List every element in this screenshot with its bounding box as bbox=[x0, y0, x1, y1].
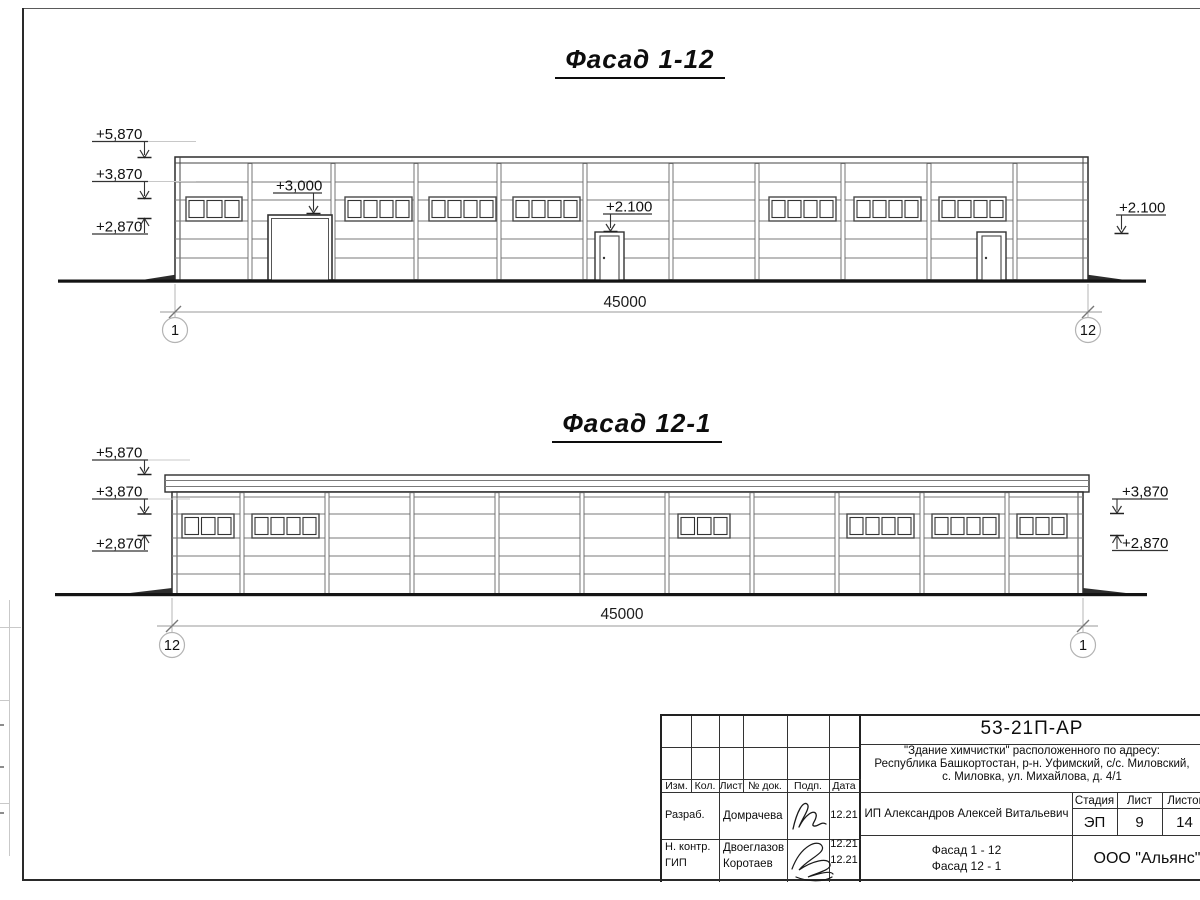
sheets-total: 14 bbox=[1162, 810, 1200, 835]
strip-window-4pane bbox=[513, 197, 580, 221]
svg-text:+3,870: +3,870 bbox=[1122, 484, 1168, 501]
elevation-mark: +5,870 bbox=[92, 445, 190, 475]
signature bbox=[786, 837, 838, 882]
facade2-wall bbox=[172, 492, 1083, 595]
svg-text:+2,870: +2,870 bbox=[96, 219, 142, 236]
axis-marker: 1 bbox=[163, 318, 188, 343]
svg-text:+2.100: +2.100 bbox=[606, 199, 652, 216]
col-header-ndok: № док. bbox=[743, 780, 787, 792]
document-code: 53-21П-АР bbox=[861, 718, 1200, 743]
svg-text:12: 12 bbox=[164, 638, 180, 654]
strip-window-4pane bbox=[854, 197, 921, 221]
axis-marker: 1 bbox=[1071, 633, 1096, 658]
role-label: Разраб. bbox=[665, 809, 705, 821]
signature bbox=[789, 797, 831, 839]
role-label: ГИП bbox=[665, 857, 687, 869]
facade2-parapet bbox=[165, 475, 1089, 492]
margin-strip-mark bbox=[0, 724, 4, 726]
company-name: ООО "Альянс" bbox=[1072, 835, 1200, 882]
gate bbox=[268, 215, 332, 280]
stage-value: ЭП bbox=[1072, 810, 1117, 835]
strip-window-4pane bbox=[847, 514, 914, 538]
col-header-kol: Кол. bbox=[691, 780, 719, 792]
elevation-mark: +2,870 bbox=[92, 536, 152, 553]
title-block: Изм. Кол. Лист № док. Подп. Дата Разраб.… bbox=[660, 714, 1200, 882]
sheets-header: Листов bbox=[1162, 795, 1200, 807]
strip-window-3pane bbox=[1017, 514, 1067, 538]
role-date: 12.21 bbox=[829, 809, 859, 821]
svg-text:+5,870: +5,870 bbox=[96, 126, 142, 143]
margin-strip-mark bbox=[0, 766, 4, 768]
col-header-podp: Подп. bbox=[787, 780, 829, 792]
elevation-mark: +5,870 bbox=[92, 126, 196, 158]
margin-strip-mark bbox=[0, 812, 4, 814]
strip-window-4pane bbox=[769, 197, 836, 221]
ramp bbox=[130, 588, 172, 593]
svg-text:+5,870: +5,870 bbox=[96, 445, 142, 462]
strip-window-3pane bbox=[182, 514, 234, 538]
ground-line bbox=[58, 280, 1146, 283]
client-name: ИП Александров Алексей Витальевич bbox=[861, 792, 1072, 835]
svg-text:+2.100: +2.100 bbox=[1119, 200, 1165, 217]
ground-line bbox=[55, 593, 1147, 596]
axis-marker: 12 bbox=[1076, 318, 1101, 343]
door bbox=[595, 232, 624, 280]
margin-strip-hline bbox=[0, 803, 9, 804]
svg-text:45000: 45000 bbox=[603, 294, 646, 311]
col-header-data: Дата bbox=[829, 780, 859, 792]
svg-text:+3,870: +3,870 bbox=[96, 484, 142, 501]
elevation-mark: +2,870 bbox=[1110, 535, 1168, 552]
facades-drawing: +5,870 +3,870 +2,870 bbox=[0, 0, 1200, 710]
role-label: Н. контр. bbox=[665, 841, 710, 853]
door bbox=[977, 232, 1006, 280]
role-name: Домрачева bbox=[723, 810, 783, 822]
strip-window-3pane bbox=[678, 514, 730, 538]
col-header-list: Лист bbox=[719, 780, 743, 792]
ramp bbox=[1083, 588, 1126, 593]
dimension-line: 45000 bbox=[160, 284, 1102, 318]
svg-text:+2,870: +2,870 bbox=[96, 536, 142, 553]
elevation-mark: +3,870 bbox=[1110, 484, 1168, 514]
svg-text:+3,000: +3,000 bbox=[276, 178, 322, 195]
facade-12-1-elevation: +5,870 +3,870 +2,870 bbox=[55, 445, 1168, 658]
ramp bbox=[145, 275, 175, 280]
elevation-mark: +2.100 bbox=[1115, 200, 1167, 234]
role-name: Коротаев bbox=[723, 858, 773, 870]
strip-window-4pane bbox=[345, 197, 412, 221]
sheet-content-title: Фасад 1 - 12 Фасад 12 - 1 bbox=[861, 842, 1072, 874]
svg-text:1: 1 bbox=[1079, 638, 1087, 654]
stage-header: Стадия bbox=[1072, 795, 1117, 807]
svg-text:12: 12 bbox=[1080, 323, 1096, 339]
axis-marker: 12 bbox=[160, 633, 185, 658]
role-name: Двоеглазов bbox=[723, 842, 784, 854]
svg-text:1: 1 bbox=[171, 323, 179, 339]
sheet-number: 9 bbox=[1117, 810, 1162, 835]
strip-window-4pane bbox=[939, 197, 1006, 221]
elevation-mark: +2,870 bbox=[92, 219, 152, 236]
strip-window-4pane bbox=[932, 514, 999, 538]
strip-window-3pane bbox=[186, 197, 242, 221]
sheet-header: Лист bbox=[1117, 795, 1162, 807]
ramp bbox=[1088, 275, 1122, 280]
svg-text:+2,870: +2,870 bbox=[1122, 535, 1168, 552]
project-address: "Здание химчистки" расположенного по адр… bbox=[861, 745, 1200, 784]
drawing-sheet: Фасад 1-12 Фасад 12-1 bbox=[0, 0, 1200, 900]
svg-text:+3,870: +3,870 bbox=[96, 166, 142, 183]
dimension-line: 45000 bbox=[157, 598, 1098, 633]
facade-1-12-elevation: +5,870 +3,870 +2,870 bbox=[58, 126, 1166, 343]
svg-text:45000: 45000 bbox=[600, 606, 643, 623]
col-header-izm: Изм. bbox=[662, 780, 691, 792]
strip-window-4pane bbox=[429, 197, 496, 221]
strip-window-4pane bbox=[252, 514, 319, 538]
